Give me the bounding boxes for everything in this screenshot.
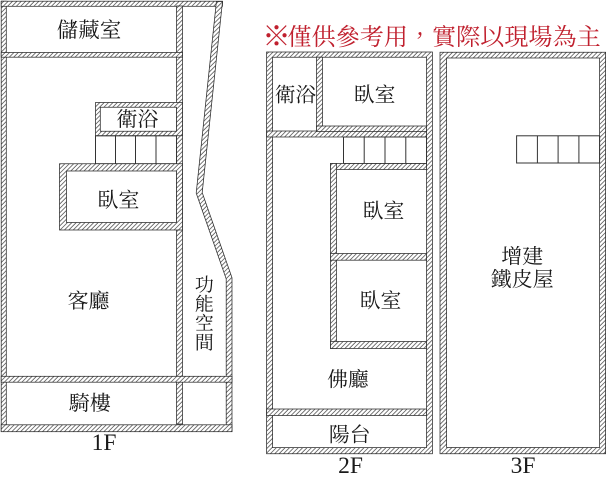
svg-text:2F: 2F	[338, 453, 363, 479]
svg-text:3F: 3F	[511, 453, 536, 479]
svg-text:1F: 1F	[92, 430, 117, 456]
